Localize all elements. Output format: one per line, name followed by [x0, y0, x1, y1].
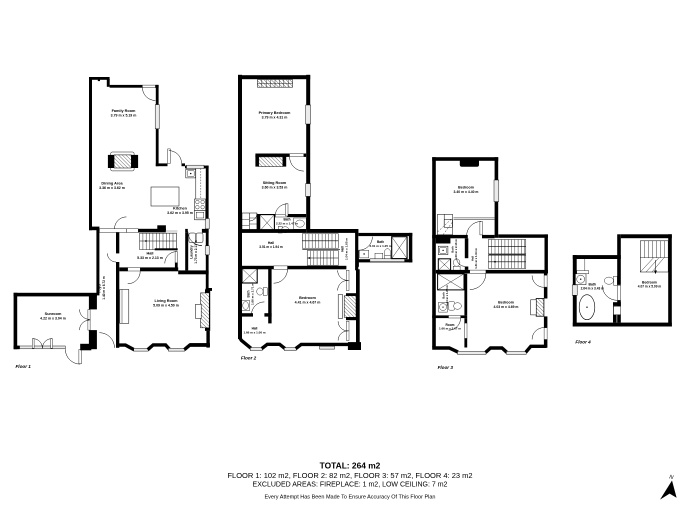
svg-text:Sitting Room: Sitting Room	[263, 181, 287, 185]
svg-text:Living Room: Living Room	[155, 299, 179, 303]
svg-text:Every Attempt Has Been Made To: Every Attempt Has Been Made To Ensure Ac…	[265, 494, 436, 500]
svg-text:Laundry: Laundry	[189, 245, 193, 258]
svg-text:4.03 m x 4.69 m: 4.03 m x 4.69 m	[494, 305, 519, 309]
svg-text:Hall: Hall	[147, 252, 154, 256]
svg-text:5.09 m x 4.50 m: 5.09 m x 4.50 m	[153, 304, 179, 308]
svg-text:1.73 m x 2.13 m: 1.73 m x 2.13 m	[194, 240, 198, 264]
svg-text:1.09 m x 2.16 m: 1.09 m x 2.16 m	[454, 239, 458, 260]
svg-text:Bedroom: Bedroom	[498, 301, 514, 305]
svg-text:3.62 m x 3.95 m: 3.62 m x 3.95 m	[167, 211, 193, 215]
svg-text:3.79 m x 4.31 m: 3.79 m x 4.31 m	[262, 116, 288, 120]
svg-text:2.64 m x 3.43 m: 2.64 m x 3.43 m	[581, 287, 605, 291]
svg-text:Dining Area: Dining Area	[101, 182, 123, 186]
svg-text:Foyer: Foyer	[98, 283, 102, 293]
svg-text:5.33 m x 2.13 m: 5.33 m x 2.13 m	[137, 256, 163, 260]
svg-text:3.60 m x 3.53 m: 3.60 m x 3.53 m	[262, 186, 288, 190]
svg-text:1.40 m x 6.72 m: 1.40 m x 6.72 m	[102, 276, 106, 300]
svg-text:Family Room: Family Room	[112, 109, 136, 113]
svg-text:3.79 m x 5.19 m: 3.79 m x 5.19 m	[111, 114, 137, 118]
svg-text:3.36 m x 3.62 m: 3.36 m x 3.62 m	[99, 186, 125, 190]
svg-text:Floor 1: Floor 1	[16, 364, 32, 369]
svg-text:EXCLUDED AREAS: FIREPLACE: 1 m: EXCLUDED AREAS: FIREPLACE: 1 m2, LOW CEI…	[253, 481, 448, 488]
svg-text:Kitchen: Kitchen	[173, 207, 188, 211]
svg-text:TOTAL: 264 m2: TOTAL: 264 m2	[320, 461, 381, 471]
svg-text:4.41 m x 4.67 m: 4.41 m x 4.67 m	[295, 301, 321, 305]
svg-text:Bedroom: Bedroom	[299, 296, 316, 300]
svg-text:Sunroom: Sunroom	[45, 312, 62, 316]
svg-text:1.66 m x 2.07 m: 1.66 m x 2.07 m	[439, 327, 461, 331]
svg-text:3.51 m x 1.94 m: 3.51 m x 1.94 m	[259, 245, 283, 249]
svg-text:Floor 2: Floor 2	[241, 356, 257, 361]
svg-text:1.31 m x 1.94 m: 1.31 m x 1.94 m	[474, 248, 478, 269]
svg-text:Floor 3: Floor 3	[438, 365, 454, 370]
svg-text:Floor 4: Floor 4	[575, 339, 591, 344]
svg-text:Bedroom: Bedroom	[458, 186, 474, 190]
svg-text:4.07 m x 5.09 m: 4.07 m x 5.09 m	[638, 285, 662, 289]
svg-text:1.04 m x 1.65 m: 1.04 m x 1.65 m	[345, 238, 349, 260]
svg-text:Primary Bedroom: Primary Bedroom	[259, 111, 291, 115]
svg-text:1.24 m x 1.63 m: 1.24 m x 1.63 m	[445, 285, 449, 306]
svg-text:3.40 m x 4.40 m: 3.40 m x 4.40 m	[454, 190, 479, 194]
svg-text:FLOOR 1: 102 m2, FLOOR 2: 82 m: FLOOR 1: 102 m2, FLOOR 2: 82 m2, FLOOR 3…	[227, 471, 472, 480]
svg-text:1.66 m x 1.06 m: 1.66 m x 1.06 m	[243, 330, 265, 334]
svg-text:2.22 m x 1.47 m: 2.22 m x 1.47 m	[276, 222, 298, 226]
svg-text:4.22 m x 3.04 m: 4.22 m x 3.04 m	[40, 317, 66, 321]
svg-text:2.01 m x 1.25 m: 2.01 m x 1.25 m	[369, 244, 391, 248]
svg-text:1.66 m x 2.71 m: 1.66 m x 2.71 m	[250, 283, 254, 305]
